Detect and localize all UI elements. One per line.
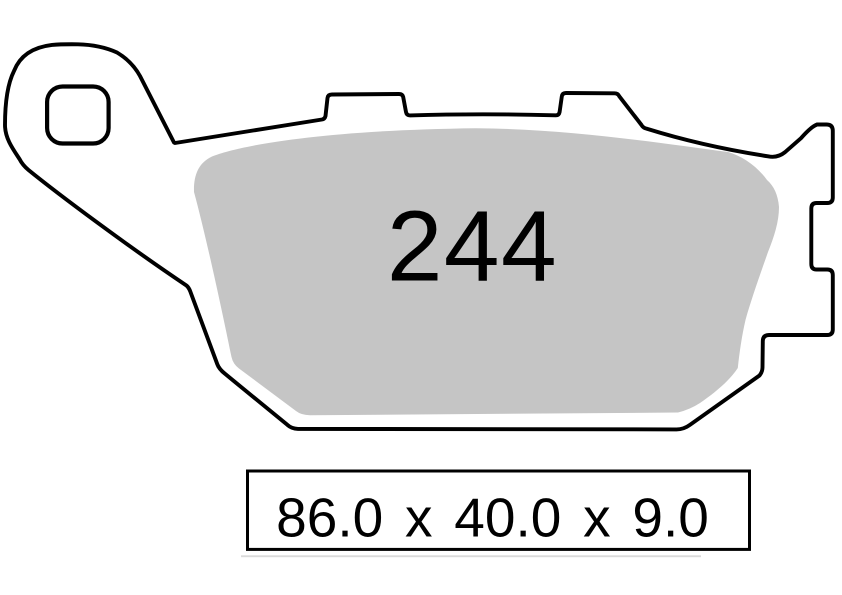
svg-text:244: 244 xyxy=(387,191,558,303)
svg-text:86.0 x 40.0 x 9.0: 86.0 x 40.0 x 9.0 xyxy=(276,487,709,549)
